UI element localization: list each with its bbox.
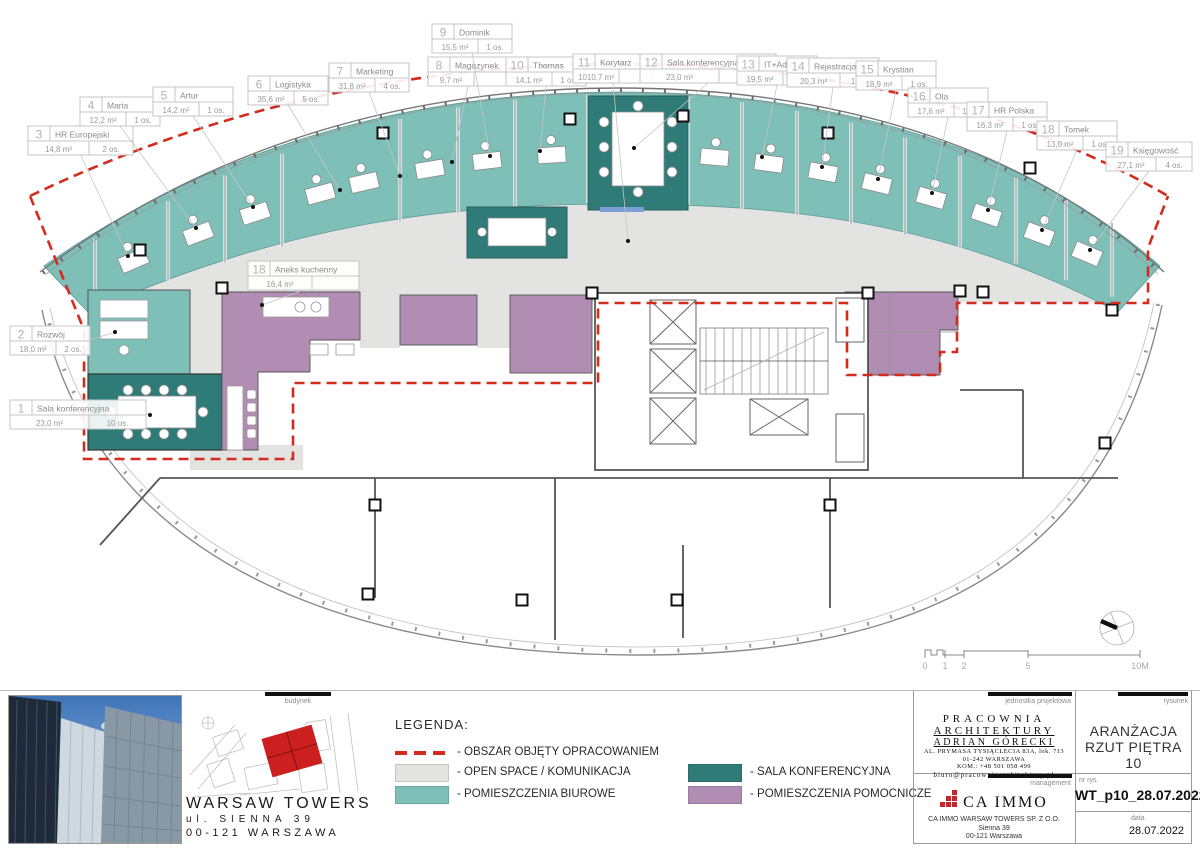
column <box>587 288 598 299</box>
room-area: 35,6 m² <box>257 95 284 104</box>
data-value: 28.07.2022 <box>1129 825 1184 837</box>
column <box>823 128 834 139</box>
room-occupancy: 1 os. <box>486 43 503 52</box>
column <box>978 287 989 298</box>
room-name: HR Polska <box>994 106 1034 116</box>
room-number: 10 <box>510 59 524 73</box>
room-area: 18,0 m² <box>19 345 46 354</box>
stairs <box>700 328 828 394</box>
room-name: Dominik <box>459 28 490 38</box>
budynek-label: budynek <box>265 698 331 705</box>
room-dot <box>113 330 117 334</box>
room-dot <box>626 239 630 243</box>
room-number: 6 <box>256 78 263 92</box>
legend-item-label: - POMIESZCZENIA BIUROWE <box>457 788 615 800</box>
column <box>363 589 374 600</box>
column <box>135 245 146 256</box>
column <box>370 500 381 511</box>
room-area: 18,9 m² <box>865 80 892 89</box>
room-name: Maria <box>107 101 129 111</box>
room-name: Sala konferencyjna <box>37 404 110 414</box>
column <box>1107 305 1118 316</box>
scale-label: 0 <box>922 661 927 671</box>
room-name: Ola <box>935 92 949 102</box>
room-number: 15 <box>860 63 874 77</box>
room-dot <box>338 188 342 192</box>
room-name: Księgowość <box>1133 146 1179 156</box>
room-name: Aneks kuchenny <box>275 265 338 275</box>
drawing-title-line-1: ARANŻACJA <box>1075 723 1192 739</box>
room-label: 1Sala konferencyjna23,0 m²10 os. <box>10 400 152 429</box>
site-map: budynek WARSAW TOWERS ul. SIENNA 39 00-1… <box>180 691 390 844</box>
room-number: 2 <box>18 328 25 342</box>
site-map-sketch <box>180 705 390 805</box>
legend-swatch-aux <box>688 786 742 804</box>
scale-label: 2 <box>961 661 966 671</box>
room-area: 19,5 m² <box>746 75 773 84</box>
room-area: 12,2 m² <box>89 116 116 125</box>
room-name: Logistyka <box>275 80 311 90</box>
room-name: Rejestracja <box>814 62 857 72</box>
room-name: Korytarz <box>600 58 632 68</box>
room-area: 20,3 m² <box>800 77 827 86</box>
title-panel: budynek WARSAW TOWERS ul. SIENNA 39 00-1… <box>0 690 1200 848</box>
room-name: Sala konferencyjna <box>667 58 740 68</box>
room-area: 13,0 m² <box>1046 140 1073 149</box>
room-number: 16 <box>912 90 926 104</box>
column <box>517 595 528 606</box>
legend-title: LEGENDA: <box>395 717 469 732</box>
data-label: data <box>1131 815 1145 822</box>
room-occupancy: 10 os. <box>107 419 129 428</box>
room-area: 14,2 m² <box>162 106 189 115</box>
legend-item-label: - POMIESZCZENIA POMOCNICZE <box>750 788 931 800</box>
column <box>678 111 689 122</box>
room-name: Thomas <box>533 61 564 71</box>
room-dot <box>488 154 492 158</box>
room-name: Artur <box>180 91 199 101</box>
legend-swatch-offices <box>395 786 449 804</box>
scale-label: 5 <box>1025 661 1030 671</box>
studio-addr-2: 01-242 WARSZAWA <box>913 756 1075 764</box>
room-name: Rozwój <box>37 330 65 340</box>
room-area: 1010,7 m² <box>578 73 614 82</box>
mgmt-line-3: 00-121 Warszawa <box>913 833 1075 842</box>
room-occupancy: 2 os. <box>102 145 119 154</box>
room-number: 17 <box>971 104 985 118</box>
room-number: 1 <box>18 402 25 416</box>
legend-item-label: - OPEN SPACE / KOMUNIKACJA <box>457 766 631 778</box>
room-dot <box>398 174 402 178</box>
room-meeting-mid <box>467 207 567 258</box>
room-name: HR Europejski <box>55 130 109 140</box>
room-occupancy: 1 os. <box>1021 121 1038 130</box>
room-name: Magazynek <box>455 61 499 71</box>
date-box: data 28.07.2022 <box>1075 811 1192 844</box>
room-number: 7 <box>337 65 344 79</box>
floor-plan: 012510M 1Sala konferencyjna23,0 m²10 os.… <box>0 0 1200 690</box>
management-block: CA IMMO CA IMMO WARSAW TOWERS SP. Z O.O.… <box>913 773 1075 844</box>
room-area: 9,7 m² <box>440 76 463 85</box>
legend: LEGENDA: - OBSZAR OBJĘTY OPRACOWANIEM - … <box>393 691 913 844</box>
room-occupancy: 4 os. <box>1165 161 1182 170</box>
room-dot <box>1040 228 1044 232</box>
studio-name-3: ADRIAN GÓRECKI <box>913 737 1075 748</box>
column <box>863 288 874 299</box>
room-number: 18 <box>252 263 266 277</box>
room-name: Tomek <box>1064 125 1090 135</box>
legend-item-label: - OBSZAR OBJĘTY OPRACOWANIEM <box>457 746 659 758</box>
room-number: 9 <box>440 26 447 40</box>
room-area: 14,8 m² <box>45 145 72 154</box>
building-photo <box>8 695 182 844</box>
room-area: 15,5 m² <box>441 43 468 52</box>
studio-addr-1: AL. PRYMASA TYSIĄCLECIA 83A, lok. 713 <box>913 748 1075 756</box>
column <box>672 595 683 606</box>
room-number: 11 <box>578 56 591 70</box>
room-number: 14 <box>791 60 805 74</box>
room-area: 16,4 m² <box>266 280 293 289</box>
room-rozwoj <box>88 290 190 374</box>
drawing-number-box: nr rys. WT_p10_28.07.2022 <box>1075 773 1192 811</box>
room-number: 3 <box>36 128 43 142</box>
room-dot <box>930 191 934 195</box>
legend-swatch-conference <box>688 764 742 782</box>
room-name: Krystian <box>883 65 914 75</box>
room-dot <box>251 205 255 209</box>
nr-value: WT_p10_28.07.2022 <box>1075 787 1192 803</box>
room-area: 23,0 m² <box>36 419 63 428</box>
room-dot <box>820 165 824 169</box>
north-arrow <box>1095 606 1139 650</box>
legend-swatch-open-space <box>395 764 449 782</box>
column <box>565 114 576 125</box>
ca-immo-logo-row: CA IMMO <box>913 790 1075 812</box>
column <box>825 500 836 511</box>
room-area: 27,1 m² <box>1117 161 1144 170</box>
ca-immo-wordmark: CA IMMO <box>963 794 1048 811</box>
room-dot <box>450 160 454 164</box>
room-area: 17,6 m² <box>917 107 944 116</box>
room-dot <box>538 149 542 153</box>
column <box>955 286 966 297</box>
room-number: 13 <box>741 58 755 72</box>
mgmt-line-1: CA IMMO WARSAW TOWERS SP. Z O.O. <box>913 816 1075 825</box>
room-dot <box>760 155 764 159</box>
room-name: Marketing <box>356 67 394 77</box>
scale-bar: 012510M <box>922 650 1148 671</box>
room-dot <box>126 254 130 258</box>
budynek-bar <box>265 692 331 696</box>
room-occupancy: 4 os. <box>383 82 400 91</box>
room-number: 12 <box>644 56 658 70</box>
building-name: WARSAW TOWERS <box>186 795 386 813</box>
room-area: 23,0 m² <box>666 73 693 82</box>
drawing-title: ARANŻACJA RZUT PIĘTRA 10 <box>1075 691 1192 773</box>
studio-name-1: PRACOWNIA <box>913 713 1075 725</box>
room-dot <box>1088 248 1092 252</box>
legend-item-label: - SALA KONFERENCYJNA <box>750 766 891 778</box>
room-occupancy: 1 os. <box>134 116 151 125</box>
room-number: 8 <box>436 59 443 73</box>
room-area: 14,1 m² <box>515 76 542 85</box>
column <box>217 283 228 294</box>
studio-name-2: ARCHITEKTURY <box>913 725 1075 737</box>
room-occupancy: 1 os. <box>207 106 224 115</box>
ca-immo-icon <box>940 790 957 807</box>
room-area: 16,3 m² <box>976 121 1003 130</box>
room-dot <box>194 226 198 230</box>
building-address-1: ul. SIENNA 39 <box>186 814 386 825</box>
nr-label: nr rys. <box>1079 777 1098 784</box>
building-address-2: 00-121 WARSZAWA <box>186 827 386 839</box>
drawing-title-line-2: RZUT PIĘTRA 10 <box>1075 739 1192 771</box>
column <box>1100 438 1111 449</box>
studio-block: PRACOWNIA ARCHITEKTURY ADRIAN GÓRECKI AL… <box>913 691 1075 773</box>
room-area: 31,8 m² <box>338 82 365 91</box>
room-number: 18 <box>1041 123 1055 137</box>
room-occupancy: 5 os. <box>302 95 319 104</box>
room-number: 5 <box>161 89 168 103</box>
room-dot <box>260 303 264 307</box>
scale-label: 1 <box>942 661 947 671</box>
mgmt-line-2: Sienna 39 <box>913 825 1075 834</box>
room-number: 19 <box>1110 144 1124 158</box>
scale-label: 10M <box>1131 661 1149 671</box>
room-dot <box>986 208 990 212</box>
core <box>595 293 868 470</box>
column <box>1025 163 1036 174</box>
room-dot <box>876 177 880 181</box>
room-dot <box>148 413 152 417</box>
room-number: 4 <box>88 99 95 113</box>
studio-addr-3: KOM.: +48 501 058 499 <box>913 763 1075 771</box>
legend-dash-sample <box>395 751 447 755</box>
room-dot <box>632 146 636 150</box>
room-occupancy: 2 os. <box>64 345 81 354</box>
